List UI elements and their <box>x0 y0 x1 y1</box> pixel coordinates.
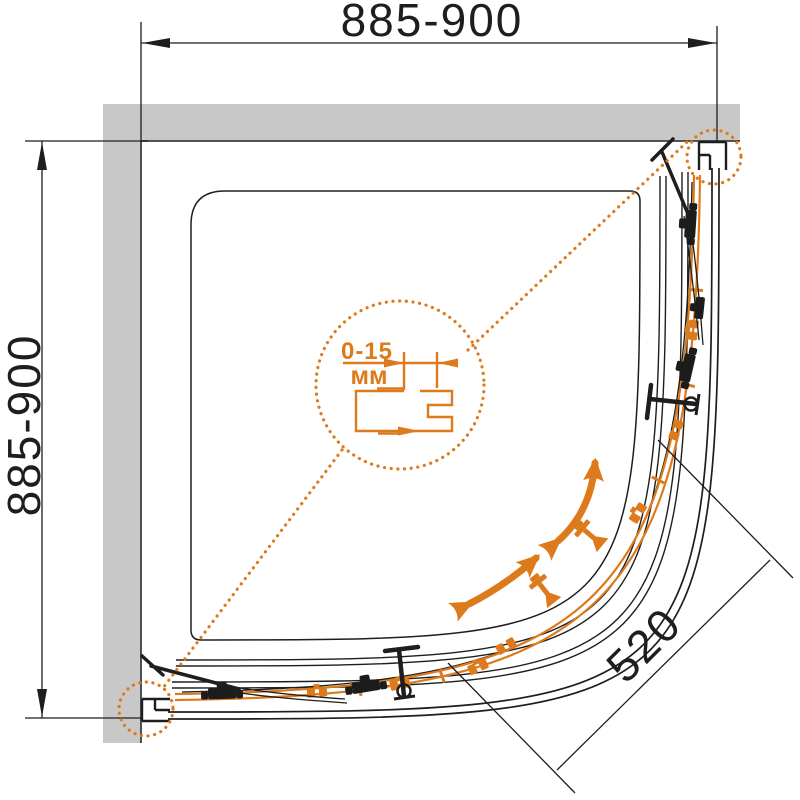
dimension-top-label: 885-900 <box>341 0 524 46</box>
profile-bottom-left <box>142 699 170 721</box>
door-knob <box>525 570 562 609</box>
detail-connector-line <box>468 141 688 350</box>
door-glass-edge <box>182 182 692 692</box>
sliding-doors <box>175 175 700 700</box>
arrowhead-right <box>688 38 716 48</box>
slide-arrow-lower <box>469 558 536 604</box>
guide-right <box>647 385 699 418</box>
guide-bottom <box>385 647 418 699</box>
dimension-left-label: 885-900 <box>0 334 50 517</box>
detail-connector-line <box>163 450 342 688</box>
wall-left <box>103 104 141 743</box>
handle-bottom-left <box>142 656 347 703</box>
technical-drawing: 885-900 885-900 520 0-15 мм <box>0 0 800 800</box>
profile-top-right <box>699 142 726 170</box>
shower-tray <box>191 191 640 640</box>
detail-profile-drawing: 0-15 мм <box>341 338 458 436</box>
detail-unit-label: мм <box>351 362 388 390</box>
wall-top <box>103 104 740 141</box>
detail-range-label: 0-15 <box>341 338 393 365</box>
arrowhead-down <box>37 689 47 717</box>
detail-circle-main <box>316 301 484 469</box>
arrowhead-up <box>37 142 47 170</box>
arrowhead-left <box>142 38 170 48</box>
